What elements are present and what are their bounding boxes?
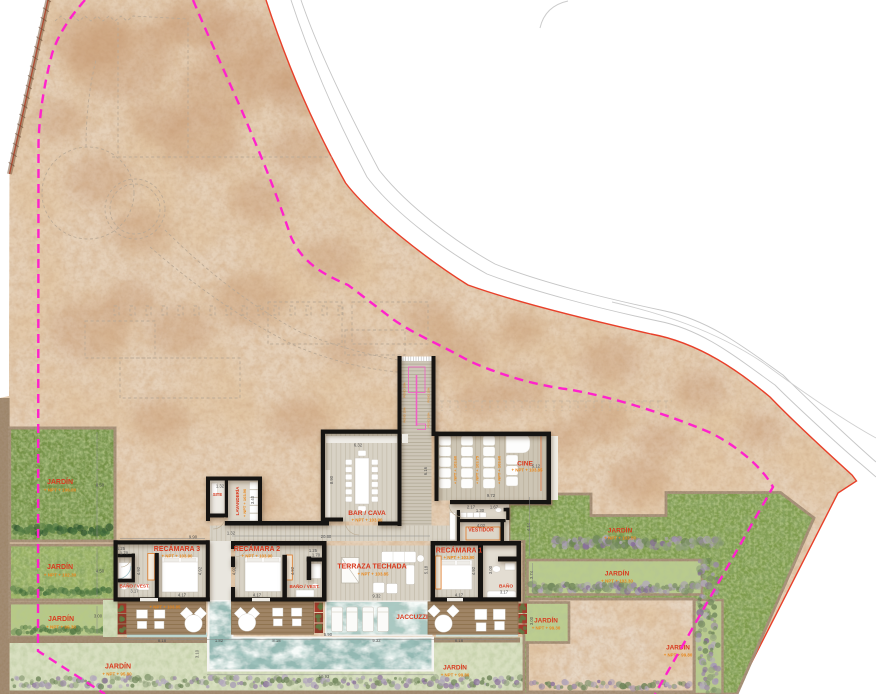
svg-text:+ NPT + 103.75: + NPT + 103.75	[475, 455, 480, 484]
svg-text:PEND 10%: PEND 10%	[403, 382, 407, 398]
svg-text:8.90: 8.90	[329, 475, 334, 484]
svg-text:JARDÍN: JARDÍN	[605, 569, 630, 578]
svg-text:JARDÍN: JARDÍN	[47, 477, 73, 486]
svg-text:+ NPT + 102.30: + NPT + 102.30	[44, 573, 77, 578]
svg-text:+ NPT + 99.30: + NPT + 99.30	[46, 625, 76, 630]
svg-text:1.30: 1.30	[476, 508, 485, 513]
svg-text:4.92: 4.92	[232, 566, 237, 575]
svg-text:3.17: 3.17	[130, 589, 139, 594]
svg-text:TERRAZA TECHADA: TERRAZA TECHADA	[337, 564, 406, 571]
svg-text:VESTIDOR: VESTIDOR	[468, 528, 494, 534]
svg-text:+ NPT + 95.80: + NPT + 95.80	[102, 672, 132, 677]
svg-text:+ NPT + 99.30: + NPT + 99.30	[532, 626, 561, 631]
svg-text:JARDÍN: JARDÍN	[105, 662, 131, 671]
svg-text:RECÁMARA 2: RECÁMARA 2	[234, 544, 281, 553]
svg-text:+ NPT + 103.90: + NPT + 103.90	[444, 555, 476, 560]
svg-text:SITE: SITE	[213, 492, 223, 497]
svg-text:JARDÍN: JARDÍN	[443, 663, 467, 672]
svg-text:JACCUZZI: JACCUZZI	[396, 614, 428, 621]
svg-text:3.00: 3.00	[488, 565, 493, 574]
svg-text:1.32: 1.32	[216, 484, 225, 489]
svg-text:1.67: 1.67	[490, 505, 499, 510]
svg-text:4.92: 4.92	[136, 566, 141, 575]
svg-text:+ NPT + 103.90: + NPT + 103.90	[242, 488, 247, 517]
svg-text:BAÑO: BAÑO	[499, 583, 513, 590]
svg-text:3.00: 3.00	[529, 616, 534, 625]
svg-text:JARDÍN: JARDÍN	[666, 643, 690, 652]
svg-text:6.16: 6.16	[423, 466, 428, 475]
svg-text:3.10: 3.10	[195, 649, 200, 658]
svg-text:8.18: 8.18	[272, 638, 281, 643]
svg-text:JARDÍN: JARDÍN	[608, 526, 633, 535]
svg-text:1.32: 1.32	[227, 531, 236, 536]
svg-text:4.14: 4.14	[526, 522, 531, 531]
svg-text:3.74: 3.74	[529, 570, 534, 579]
svg-text:+ NPT + 103.90: + NPT + 103.90	[352, 518, 384, 523]
svg-text:+ NPT + 103.85: + NPT + 103.85	[358, 572, 390, 577]
svg-text:+ NPT + 103.60: + NPT + 103.60	[453, 455, 458, 484]
svg-text:9.32: 9.32	[372, 638, 381, 643]
svg-text:BAÑO / VEST.: BAÑO / VEST.	[289, 583, 319, 589]
svg-text:+ NPT + 103.50: + NPT + 103.50	[604, 536, 636, 541]
svg-text:RECÁMARA 1: RECÁMARA 1	[436, 546, 483, 555]
svg-text:4.02: 4.02	[477, 523, 486, 528]
svg-text:JARDÍN: JARDÍN	[48, 614, 74, 623]
svg-text:4.17: 4.17	[253, 593, 262, 598]
svg-text:4.17: 4.17	[455, 593, 464, 598]
svg-text:2.17: 2.17	[467, 505, 476, 510]
svg-text:4.92: 4.92	[290, 566, 295, 575]
svg-text:1.82: 1.82	[215, 638, 224, 643]
svg-text:BAR / CAVA: BAR / CAVA	[348, 510, 386, 517]
svg-text:3.17: 3.17	[500, 590, 509, 595]
svg-text:JARDÍN: JARDÍN	[534, 616, 558, 625]
svg-text:5.12: 5.12	[532, 464, 541, 469]
svg-text:8.18: 8.18	[455, 638, 464, 643]
svg-text:6.32: 6.32	[354, 443, 363, 448]
svg-text:+ NPT + 99.80: + NPT + 99.80	[441, 673, 470, 678]
svg-text:+ NPT + 103.90: + NPT + 103.90	[242, 554, 274, 559]
svg-text:3.00: 3.00	[94, 614, 103, 619]
svg-text:9.72: 9.72	[487, 493, 496, 498]
svg-text:+ NPT + 106.00: + NPT + 106.00	[44, 488, 77, 493]
svg-text:+ NPT + 103.30: + NPT + 103.30	[601, 579, 633, 584]
svg-text:1.70: 1.70	[312, 553, 321, 558]
svg-text:RECÁMARA 3: RECÁMARA 3	[154, 544, 201, 553]
svg-text:PEND 10%: PEND 10%	[403, 407, 407, 423]
svg-text:LAVANDERÍA: LAVANDERÍA	[233, 486, 240, 516]
svg-text:4.92: 4.92	[471, 566, 476, 575]
svg-text:5.18: 5.18	[424, 565, 429, 574]
svg-text:JARDÍN: JARDÍN	[47, 562, 73, 571]
svg-text:+ NPT + 103.85: + NPT + 103.85	[150, 605, 182, 610]
svg-text:4.17: 4.17	[178, 593, 187, 598]
svg-text:9.32: 9.32	[372, 594, 381, 599]
svg-text:1.70: 1.70	[120, 551, 129, 556]
svg-text:8.18: 8.18	[158, 638, 167, 643]
svg-text:4.92: 4.92	[198, 566, 203, 575]
svg-text:20.80: 20.80	[321, 534, 332, 539]
svg-text:PEND 10%: PEND 10%	[427, 412, 431, 428]
svg-text:3.40: 3.40	[250, 495, 255, 504]
svg-text:+ NPT + 103.90: + NPT + 103.90	[162, 554, 194, 559]
svg-text:PEND 10%: PEND 10%	[427, 387, 431, 403]
svg-text:5.90: 5.90	[324, 632, 333, 637]
svg-text:+ NPT + 103.60: + NPT + 103.60	[497, 455, 502, 484]
